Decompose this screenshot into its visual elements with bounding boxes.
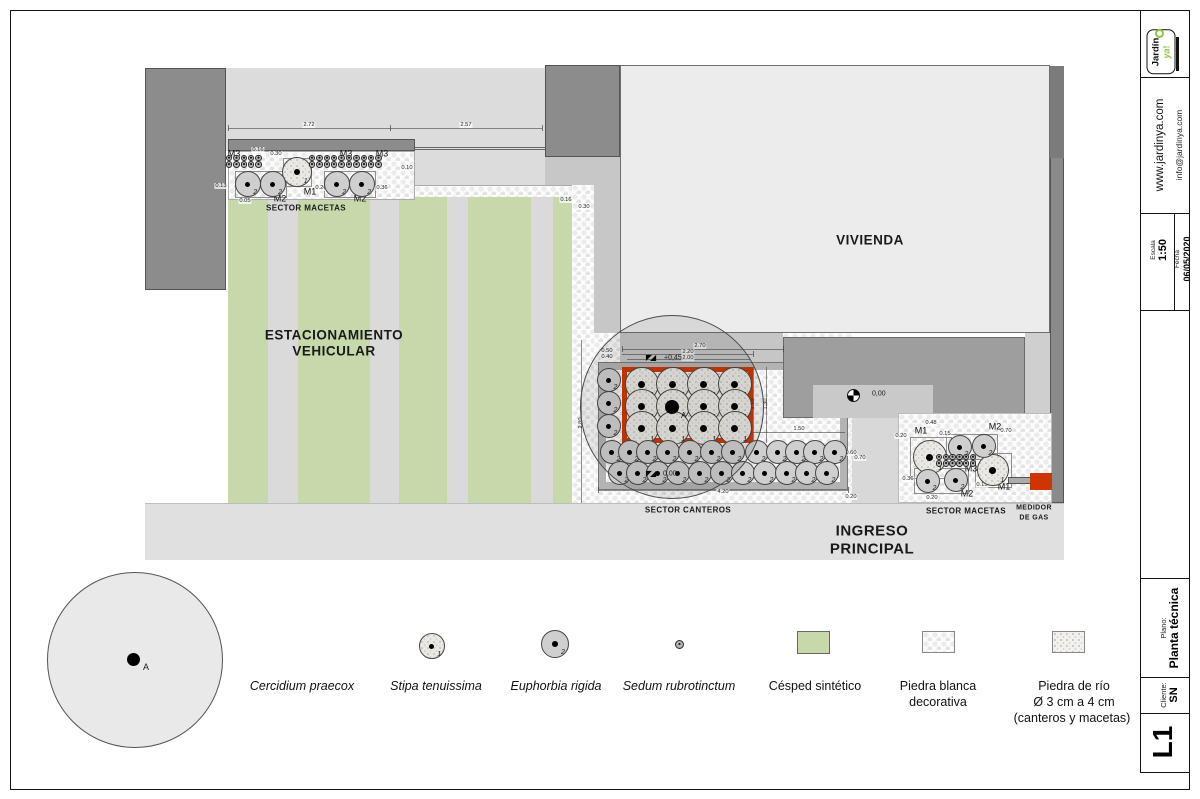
sheet-border [10,10,1190,790]
plan-sheet: ESTACIONAMIENTO VEHICULAR VIVIENDA INGRE… [0,0,1200,799]
